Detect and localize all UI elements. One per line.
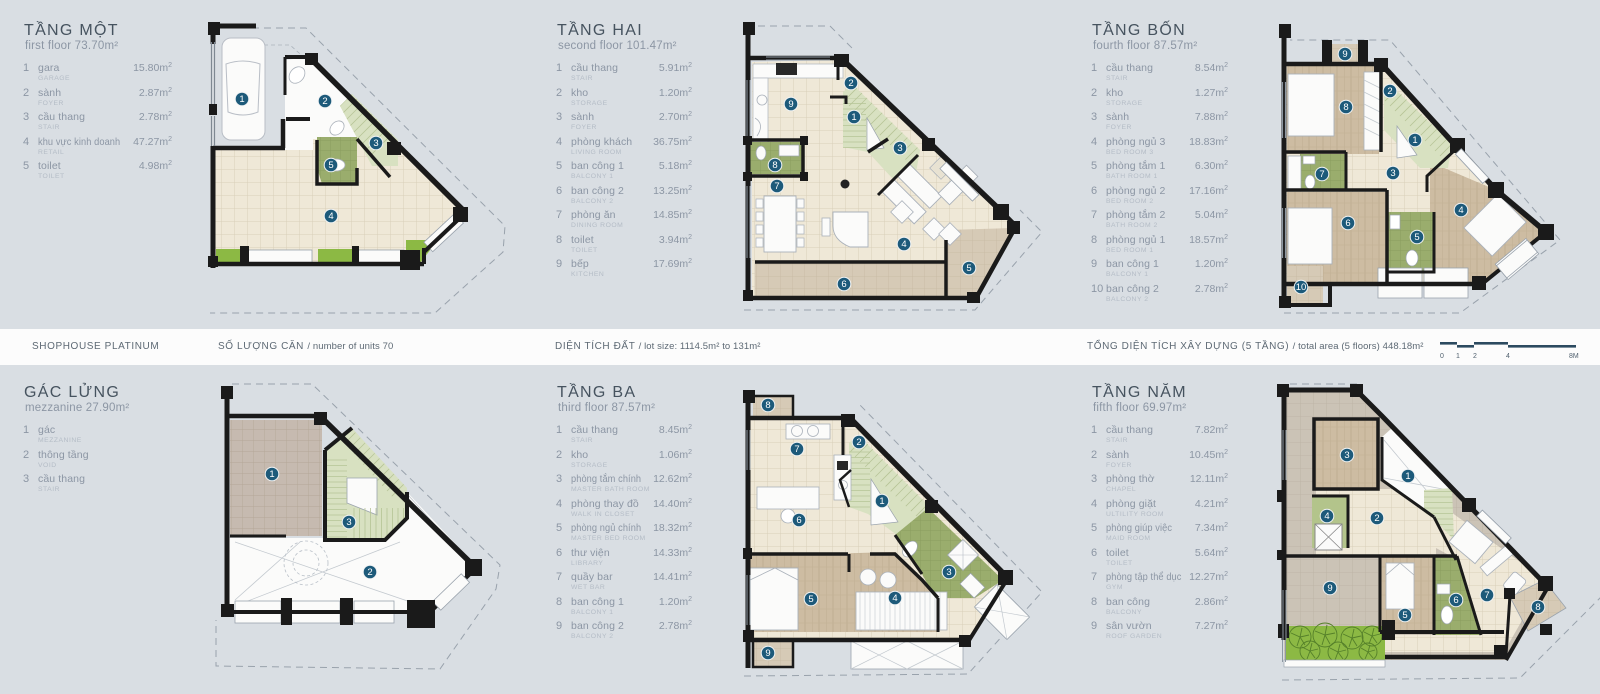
svg-text:4: 4	[1506, 353, 1510, 360]
svg-text:1: 1	[851, 112, 856, 123]
svg-text:8: 8	[772, 160, 777, 171]
svg-text:8M: 8M	[1569, 353, 1579, 360]
svg-text:0: 0	[1440, 353, 1444, 360]
svg-text:6: 6	[796, 515, 801, 526]
svg-text:3: 3	[1344, 450, 1349, 461]
svg-text:3: 3	[897, 143, 902, 154]
svg-text:4: 4	[892, 593, 897, 604]
svg-text:6: 6	[841, 279, 846, 290]
svg-text:10: 10	[1296, 282, 1307, 293]
svg-text:1: 1	[1412, 135, 1417, 146]
svg-text:1: 1	[239, 94, 244, 105]
svg-text:2: 2	[848, 78, 853, 89]
svg-text:5: 5	[1402, 610, 1407, 621]
svg-text:9: 9	[1342, 49, 1347, 60]
svg-text:1: 1	[879, 496, 884, 507]
svg-text:6: 6	[1453, 595, 1458, 606]
svg-text:3: 3	[373, 138, 378, 149]
svg-text:5: 5	[808, 594, 813, 605]
svg-text:4: 4	[901, 239, 906, 250]
svg-text:7: 7	[774, 181, 779, 192]
svg-text:4: 4	[328, 211, 333, 222]
svg-text:9: 9	[1327, 583, 1332, 594]
svg-text:3: 3	[946, 567, 951, 578]
svg-text:2: 2	[856, 437, 861, 448]
svg-text:5: 5	[966, 263, 971, 274]
svg-text:9: 9	[765, 648, 770, 659]
svg-text:2: 2	[1387, 86, 1392, 97]
svg-text:2: 2	[367, 567, 372, 578]
svg-text:5: 5	[328, 160, 333, 171]
svg-text:7: 7	[794, 444, 799, 455]
svg-text:8: 8	[1535, 602, 1540, 613]
svg-text:3: 3	[346, 517, 351, 528]
svg-text:1: 1	[1405, 471, 1410, 482]
svg-text:7: 7	[1319, 169, 1324, 180]
svg-text:9: 9	[788, 99, 793, 110]
svg-text:1: 1	[269, 469, 274, 480]
svg-text:4: 4	[1458, 205, 1463, 216]
svg-text:7: 7	[1484, 590, 1489, 601]
svg-text:2: 2	[322, 96, 327, 107]
svg-text:3: 3	[1390, 168, 1395, 179]
svg-text:4: 4	[1324, 511, 1329, 522]
svg-text:8: 8	[765, 400, 770, 411]
svg-text:6: 6	[1345, 218, 1350, 229]
svg-text:2: 2	[1374, 513, 1379, 524]
svg-text:5: 5	[1414, 232, 1419, 243]
svg-text:2: 2	[1473, 353, 1477, 360]
svg-text:1: 1	[1456, 353, 1460, 360]
svg-text:8: 8	[1343, 102, 1348, 113]
